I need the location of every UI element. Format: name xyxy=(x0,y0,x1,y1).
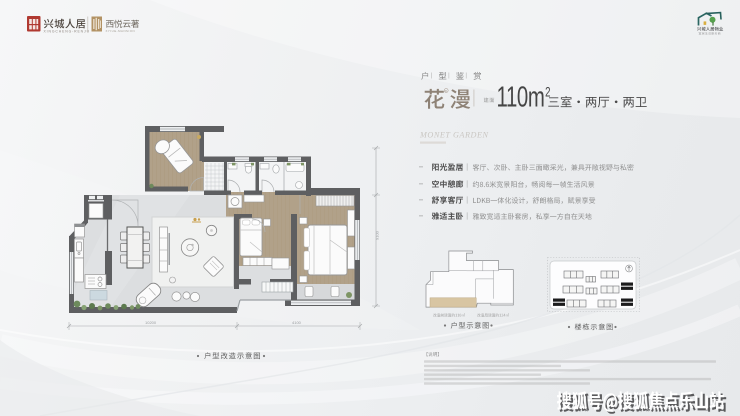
svg-text:R: R xyxy=(445,89,447,93)
svg-text:4100: 4100 xyxy=(292,320,302,325)
svg-text:MONET GARDEN: MONET GARDEN xyxy=(419,131,489,140)
svg-text:10200: 10200 xyxy=(145,320,157,325)
svg-text:XIYUE-MANSION: XIYUE-MANSION xyxy=(106,29,136,33)
svg-text:9100: 9100 xyxy=(375,230,380,240)
svg-text:110m: 110m xyxy=(497,82,545,113)
svg-text:XINGCHENG-RENJU: XINGCHENG-RENJU xyxy=(44,30,90,34)
